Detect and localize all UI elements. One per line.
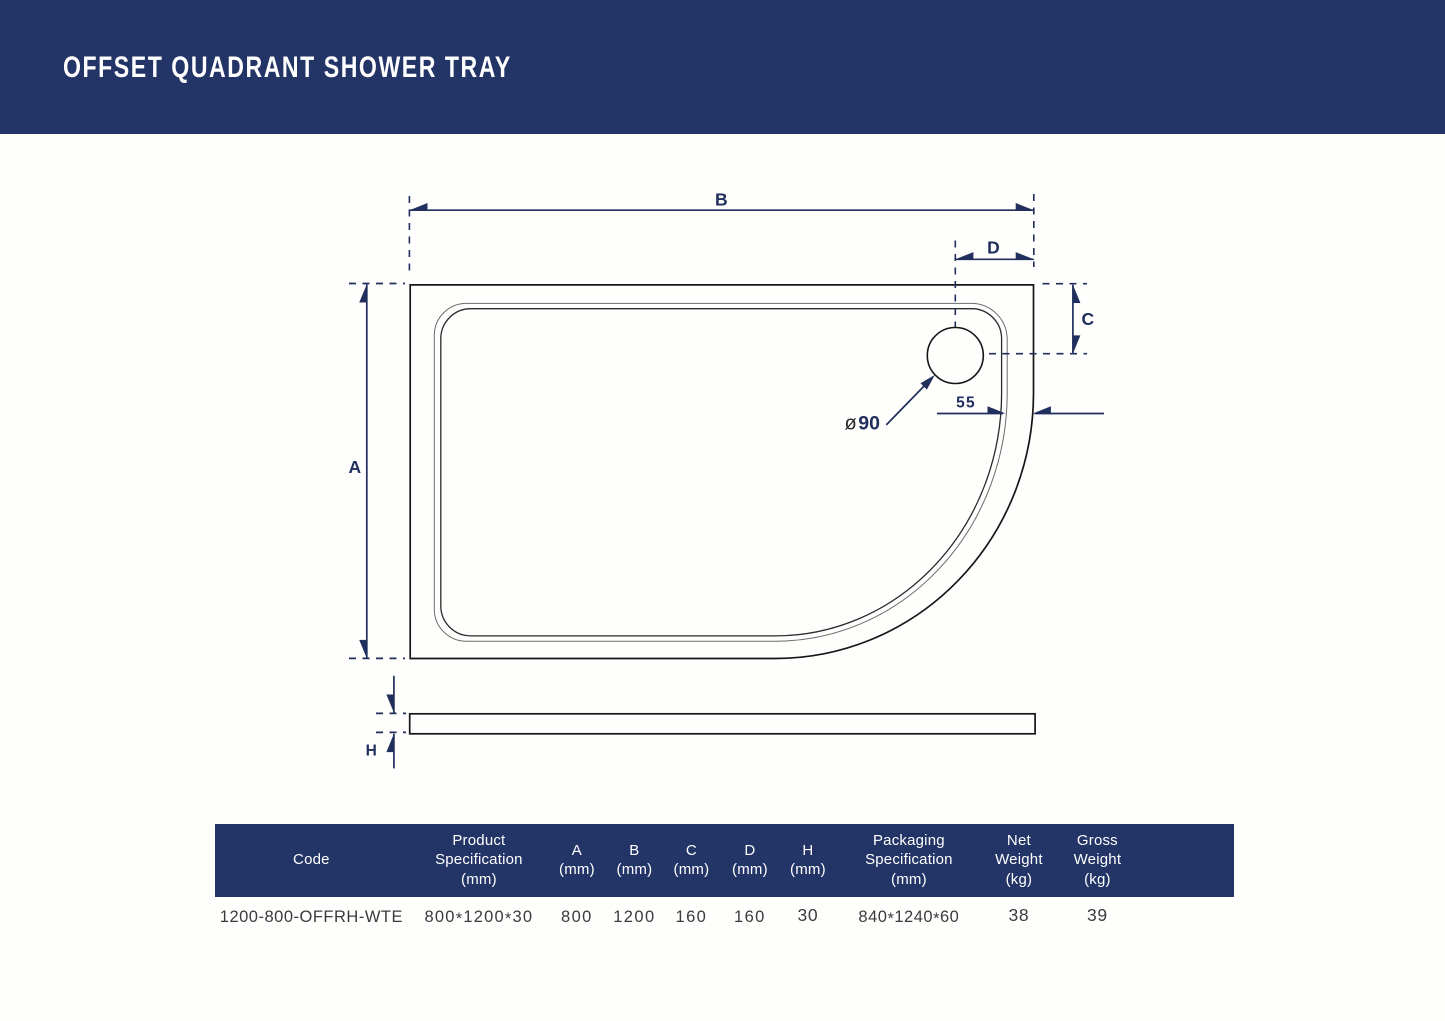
svg-text:ø90: ø90 [845,412,881,434]
svg-text:C: C [1081,309,1094,329]
svg-text:A: A [348,457,361,477]
svg-text:D: D [987,238,1000,258]
svg-text:55: 55 [956,395,976,412]
svg-text:B: B [715,189,728,209]
svg-text:H: H [366,742,377,759]
